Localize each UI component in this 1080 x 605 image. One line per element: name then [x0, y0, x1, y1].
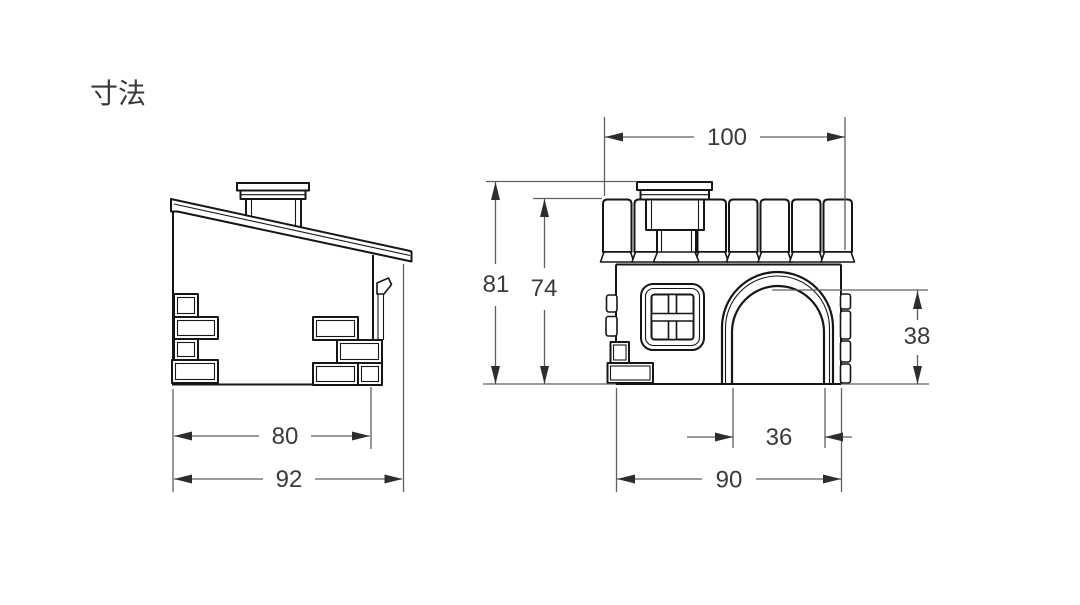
brick-tab [841, 364, 851, 383]
dimension-arrow [174, 432, 192, 441]
chimney-eave [654, 252, 700, 262]
dimension-arrow [385, 475, 403, 484]
roof-tile [729, 200, 758, 253]
roof-eave [758, 252, 792, 262]
brick-tab [841, 311, 851, 339]
dim-label-81: 81 [483, 271, 510, 298]
chimney-neck [657, 230, 696, 253]
page-title: 寸法 [90, 77, 146, 110]
dimension-arrow [823, 475, 841, 484]
roof-tile [792, 200, 821, 253]
window [641, 284, 704, 350]
dimension-arrow [827, 133, 845, 142]
brick-tab [841, 341, 851, 362]
brick-tab [841, 294, 851, 309]
dimension-74: 74 [531, 199, 602, 385]
front-dimensions: 100 81 74 [483, 117, 931, 494]
side-right-bricks [313, 317, 382, 385]
dimension-arrow [540, 366, 549, 384]
dim-label-92: 92 [276, 466, 303, 493]
roof-eave [601, 252, 635, 262]
dimension-arrow [825, 433, 843, 442]
dimension-arrow [605, 133, 623, 142]
dimension-90: 90 [617, 467, 841, 494]
side-roof-inner-line [174, 204, 410, 256]
dimension-arrow [491, 366, 500, 384]
window-mullion-horizontal [652, 314, 694, 322]
dimension-36: 36 [687, 424, 852, 451]
dimension-arrow [352, 432, 370, 441]
roof-eave [821, 252, 855, 262]
dimension-arrow [913, 291, 922, 309]
dimension-drawing: 寸法 [0, 0, 1080, 605]
dim-label-74: 74 [531, 275, 558, 302]
dimension-arrow [617, 475, 635, 484]
brick-tab [607, 295, 618, 312]
side-view: 80 92 [171, 183, 412, 493]
roof-tile [761, 200, 790, 253]
door-arch [722, 272, 833, 384]
roof-tile [603, 200, 632, 253]
dimension-80: 80 [174, 423, 370, 450]
roof-eave [727, 252, 761, 262]
dimension-arrow [913, 366, 922, 384]
chimney-body [646, 200, 704, 231]
dim-label-80: 80 [272, 423, 299, 450]
side-left-bricks [172, 294, 218, 383]
roof-eave [695, 252, 729, 262]
front-roof [601, 200, 855, 263]
dimension-92: 92 [174, 466, 403, 493]
roof-eave [790, 252, 824, 262]
chimney-cap [637, 182, 712, 190]
dim-label-100: 100 [707, 124, 747, 151]
front-view: 100 81 74 [483, 117, 931, 494]
front-right-bricks [841, 294, 851, 383]
chimney-cap [237, 183, 309, 191]
drawing-canvas: 寸法 [0, 0, 1080, 605]
dimension-arrow [174, 475, 192, 484]
dim-label-38: 38 [904, 323, 931, 350]
dimension-arrow [491, 182, 500, 200]
dim-label-90: 90 [716, 467, 743, 494]
dimension-arrow [540, 199, 549, 217]
side-downspout [377, 278, 392, 340]
dimension-arrow [715, 433, 733, 442]
downspout-hopper [377, 278, 392, 294]
roof-tile [824, 200, 853, 253]
brick-tab [606, 317, 617, 337]
dim-label-36: 36 [766, 424, 793, 451]
door-opening [732, 286, 824, 384]
side-roof [171, 199, 412, 262]
